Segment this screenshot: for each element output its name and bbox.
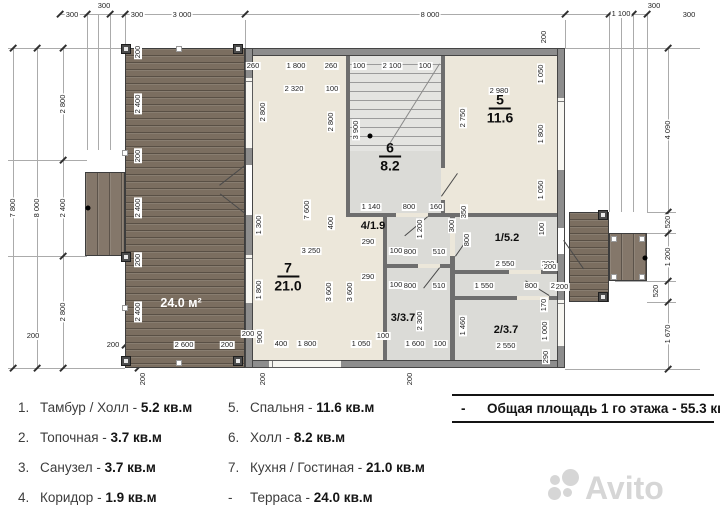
room-number: 6 bbox=[379, 141, 401, 158]
entry-dot bbox=[643, 256, 648, 261]
dim-label: 100 bbox=[389, 247, 404, 255]
dim-label: 350 bbox=[460, 205, 468, 220]
legend-item-number: 4. bbox=[18, 490, 40, 505]
dim-label: 1 800 bbox=[537, 124, 545, 145]
dim-line bbox=[633, 14, 634, 212]
dim-label: 510 bbox=[432, 282, 447, 290]
wall-4-1 bbox=[450, 256, 455, 264]
dim-label: 1 550 bbox=[474, 282, 495, 290]
dim-line bbox=[8, 48, 125, 49]
total-name: Общая площадь 1 го этажа bbox=[487, 401, 668, 416]
total-rule-bottom bbox=[452, 421, 714, 423]
dim-label: 2 550 bbox=[495, 260, 516, 268]
dim-label: 900 bbox=[256, 330, 264, 345]
dim-line bbox=[8, 368, 125, 369]
dim-label: 1 000 bbox=[541, 321, 549, 342]
floor-plan-page: 3003003003 0008 0001 1003003007 8008 000… bbox=[0, 0, 720, 519]
total-rule-top bbox=[452, 394, 714, 396]
window bbox=[245, 78, 253, 148]
dim-label: 200 bbox=[106, 341, 121, 349]
dim-label: 800 bbox=[402, 203, 417, 211]
dim-label: 290 bbox=[361, 238, 376, 246]
room-label-bedroom: 511.6 bbox=[487, 92, 513, 127]
dim-label: 2 800 bbox=[59, 94, 67, 115]
dim-line bbox=[647, 212, 676, 213]
dim-label: 200 bbox=[220, 341, 235, 349]
dim-label: 2 550 bbox=[496, 342, 517, 350]
dim-label: 8 000 bbox=[420, 11, 441, 19]
dim-line bbox=[245, 20, 246, 48]
stair-direction-dot bbox=[368, 134, 373, 139]
legend-item-number: - bbox=[228, 490, 250, 505]
dim-label: 100 bbox=[325, 85, 340, 93]
dim-label: 520 bbox=[664, 215, 672, 230]
legend-item-name: Топочная - bbox=[40, 430, 111, 445]
dim-line bbox=[609, 14, 610, 212]
wall-4-3 bbox=[387, 264, 418, 268]
dim-label: 2 300 bbox=[416, 311, 424, 332]
dim-line bbox=[98, 14, 99, 150]
window bbox=[245, 255, 253, 303]
terrace-post bbox=[233, 356, 243, 366]
dim-label: 400 bbox=[274, 340, 289, 348]
window bbox=[557, 300, 565, 346]
dim-label: 800 bbox=[463, 233, 471, 248]
deck-marker bbox=[639, 236, 645, 242]
dim-label: 400 bbox=[327, 216, 335, 231]
dim-label: 2 400 bbox=[134, 94, 142, 115]
dim-label: 2 400 bbox=[134, 198, 142, 219]
dim-line bbox=[8, 160, 87, 161]
dim-label: 200 bbox=[134, 253, 142, 268]
dim-label: 800 bbox=[524, 282, 539, 290]
room-number: 7 bbox=[277, 261, 299, 278]
wall-mid-h bbox=[428, 213, 557, 217]
total-value: 55.3 кв.м bbox=[680, 401, 720, 416]
legend-item-name: Спальня - bbox=[250, 400, 316, 415]
dim-label: 1 100 bbox=[611, 10, 632, 18]
dim-label: 290 bbox=[542, 350, 550, 365]
terrace-post bbox=[121, 252, 131, 262]
room-label-kitchen-living: 721.0 bbox=[274, 260, 301, 295]
deck-marker bbox=[611, 274, 617, 280]
legend-item-number: 2. bbox=[18, 430, 40, 445]
terrace-post bbox=[121, 44, 131, 54]
terrace-post bbox=[121, 356, 131, 366]
room-label-hall: 68.2 bbox=[379, 140, 401, 175]
legend-item: 1.Тамбур / Холл - 5.2 кв.м bbox=[18, 400, 192, 415]
legend-item-value: 11.6 кв.м bbox=[316, 400, 374, 415]
legend-item-number: 6. bbox=[228, 430, 250, 445]
window bbox=[269, 360, 341, 368]
terrace-area-label: 24.0 м² bbox=[160, 296, 201, 310]
dim-label: 200 bbox=[406, 372, 414, 387]
deck-marker bbox=[122, 150, 128, 156]
dim-label: 1 800 bbox=[255, 280, 263, 301]
legend-item-number: 5. bbox=[228, 400, 250, 415]
dim-label: 520 bbox=[652, 284, 660, 299]
room-label-corridor: 4/1.9 bbox=[361, 220, 385, 232]
dim-label: 2 100 bbox=[382, 62, 403, 70]
deck-marker bbox=[611, 236, 617, 242]
dim-label: 200 bbox=[26, 332, 41, 340]
legend-item-name: Тамбур / Холл - bbox=[40, 400, 141, 415]
room-area: 21.0 bbox=[274, 278, 301, 295]
room-area: 8.2 bbox=[379, 158, 401, 175]
porch-post bbox=[598, 292, 608, 302]
deck-marker bbox=[122, 305, 128, 311]
dim-label: 800 bbox=[403, 248, 418, 256]
dim-label: 3 600 bbox=[325, 282, 333, 303]
legend-item-value: 3.7 кв.м bbox=[111, 430, 162, 445]
wall-hall-2 bbox=[455, 296, 517, 300]
dim-label: 260 bbox=[324, 62, 339, 70]
legend-item-value: 3.7 кв.м bbox=[105, 460, 156, 475]
dim-label: 200 bbox=[134, 149, 142, 164]
dim-line bbox=[621, 14, 622, 212]
dim-label: 100 bbox=[389, 281, 404, 289]
legend-item: 3.Санузел - 3.7 кв.м bbox=[18, 460, 156, 475]
dim-label: 2 800 bbox=[259, 102, 267, 123]
porch-post bbox=[598, 210, 608, 220]
dim-label: 160 bbox=[429, 203, 444, 211]
deck-marker bbox=[639, 274, 645, 280]
dim-line bbox=[60, 14, 648, 15]
dim-label: 1 670 bbox=[664, 324, 672, 345]
dim-label: 1 800 bbox=[297, 340, 318, 348]
dim-label: 200 bbox=[139, 372, 147, 387]
dim-line bbox=[647, 302, 676, 303]
dim-label: 200 bbox=[555, 283, 570, 291]
dim-label: 3 250 bbox=[301, 247, 322, 255]
dim-line bbox=[647, 14, 648, 212]
dim-label: 260 bbox=[246, 62, 261, 70]
terrace-door-opening bbox=[246, 165, 252, 215]
wall-mid-h bbox=[346, 213, 396, 217]
dim-label: 300 bbox=[682, 11, 697, 19]
dim-label: 2 800 bbox=[59, 302, 67, 323]
dim-label: 1 460 bbox=[459, 316, 467, 337]
room-label-boiler-room: 2/3.7 bbox=[494, 324, 518, 336]
dim-label: 1 200 bbox=[416, 219, 424, 240]
terrace-steps bbox=[85, 172, 125, 256]
deck-marker bbox=[176, 360, 182, 366]
dim-label: 290 bbox=[361, 273, 376, 281]
dim-line bbox=[565, 48, 700, 49]
dim-label: 1 050 bbox=[537, 180, 545, 201]
legend-item-name: Кухня / Гостиная - bbox=[250, 460, 366, 475]
dim-label: 200 bbox=[540, 30, 548, 45]
legend-item: 5.Спальня - 11.6 кв.м bbox=[228, 400, 374, 415]
deck-marker bbox=[176, 46, 182, 52]
entry-dot bbox=[86, 206, 91, 211]
dim-label: 200 bbox=[241, 330, 256, 338]
dim-label: 300 bbox=[97, 2, 112, 10]
dim-label: 200 bbox=[259, 372, 267, 387]
legend-item-name: Коридор - bbox=[40, 490, 105, 505]
dim-label: 510 bbox=[432, 248, 447, 256]
dim-label: 200 bbox=[543, 263, 558, 271]
dim-label: 2 800 bbox=[327, 112, 335, 133]
dim-label: 1 140 bbox=[361, 203, 382, 211]
dim-label: 100 bbox=[538, 222, 546, 237]
dim-label: 1 050 bbox=[351, 340, 372, 348]
dim-line bbox=[565, 20, 566, 48]
dim-label: 1 050 bbox=[537, 64, 545, 85]
wall-top bbox=[245, 48, 565, 56]
legend-item-name: Холл - bbox=[250, 430, 294, 445]
window bbox=[557, 98, 565, 170]
terrace-post bbox=[233, 44, 243, 54]
dim-label: 2 600 bbox=[174, 341, 195, 349]
dim-label: 2 400 bbox=[134, 302, 142, 323]
dim-label: 800 bbox=[403, 282, 418, 290]
total-area-line: -Общая площадь 1 го этажа - 55.3 кв.м bbox=[455, 401, 713, 416]
avito-logo-icon bbox=[547, 468, 585, 508]
dim-line bbox=[8, 256, 87, 257]
avito-watermark-text: Avito bbox=[585, 470, 664, 507]
legend-item: 7.Кухня / Гостиная - 21.0 кв.м bbox=[228, 460, 425, 475]
floor-plan: 3003003003 0008 0001 1003003007 8008 000… bbox=[0, 0, 720, 392]
staircase bbox=[350, 56, 441, 151]
legend-item-number: 7. bbox=[228, 460, 250, 475]
dim-label: 1 200 bbox=[664, 247, 672, 268]
dim-label: 100 bbox=[376, 332, 391, 340]
terrace bbox=[125, 48, 245, 368]
dim-label: 4 090 bbox=[664, 120, 672, 141]
wall-3-hall bbox=[450, 268, 455, 360]
dim-line bbox=[565, 369, 700, 370]
room-number: 5 bbox=[489, 93, 511, 110]
avito-watermark: Avito bbox=[547, 468, 664, 508]
wall-hall-2 bbox=[549, 296, 557, 300]
dim-line bbox=[110, 14, 111, 150]
legend-item-value: 1.9 кв.м bbox=[105, 490, 156, 505]
legend-item-name: Терраса - bbox=[250, 490, 314, 505]
legend-item-value: 8.2 кв.м bbox=[294, 430, 345, 445]
legend-item: 4.Коридор - 1.9 кв.м bbox=[18, 490, 157, 505]
dim-label: 300 bbox=[647, 2, 662, 10]
dim-label: 7 800 bbox=[9, 198, 17, 219]
dim-label: 3 000 bbox=[172, 11, 193, 19]
room-area: 11.6 bbox=[487, 110, 513, 127]
legend-item-number: 3. bbox=[18, 460, 40, 475]
dim-label: 2 320 bbox=[284, 85, 305, 93]
dim-line bbox=[87, 14, 88, 150]
dim-line bbox=[125, 14, 126, 48]
legend-item-value: 24.0 кв.м bbox=[314, 490, 373, 505]
dim-label: 2 750 bbox=[459, 108, 467, 129]
legend-item: -Терраса - 24.0 кв.м bbox=[228, 490, 373, 505]
legend-item-value: 21.0 кв.м bbox=[366, 460, 425, 475]
dim-label: 300 bbox=[130, 11, 145, 19]
dim-label: 1 300 bbox=[255, 215, 263, 236]
dim-label: 300 bbox=[65, 11, 80, 19]
dim-label: 7 600 bbox=[303, 200, 311, 221]
dim-label: 100 bbox=[352, 62, 367, 70]
legend-item-value: 5.2 кв.м bbox=[141, 400, 192, 415]
dim-label: 1 600 bbox=[405, 340, 426, 348]
dim-label: 100 bbox=[433, 340, 448, 348]
dim-label: 100 bbox=[418, 62, 433, 70]
wall-1-hall bbox=[455, 270, 509, 274]
room-label-bathroom: 3/3.7 bbox=[391, 312, 415, 324]
dim-label: 300 bbox=[448, 219, 456, 234]
total-sep: - bbox=[668, 401, 680, 416]
dim-label: 170 bbox=[540, 298, 548, 313]
dim-label: 2 400 bbox=[59, 198, 67, 219]
dim-label: 3 900 bbox=[352, 120, 360, 141]
dim-label: 1 800 bbox=[286, 62, 307, 70]
room-label-tambour-hall: 1/5.2 bbox=[495, 232, 519, 244]
dim-label: 200 bbox=[134, 45, 142, 60]
dim-label: 8 000 bbox=[33, 198, 41, 219]
dim-label: 3 600 bbox=[346, 282, 354, 303]
wall-6-5 bbox=[441, 56, 445, 168]
hallway-strip bbox=[455, 274, 557, 296]
wall-7-6 bbox=[346, 56, 350, 213]
legend-item-name: Санузел - bbox=[40, 460, 105, 475]
legend-item: 2.Топочная - 3.7 кв.м bbox=[18, 430, 162, 445]
legend-item: 6.Холл - 8.2 кв.м bbox=[228, 430, 345, 445]
total-dash: - bbox=[455, 401, 487, 416]
legend-item-number: 1. bbox=[18, 400, 40, 415]
